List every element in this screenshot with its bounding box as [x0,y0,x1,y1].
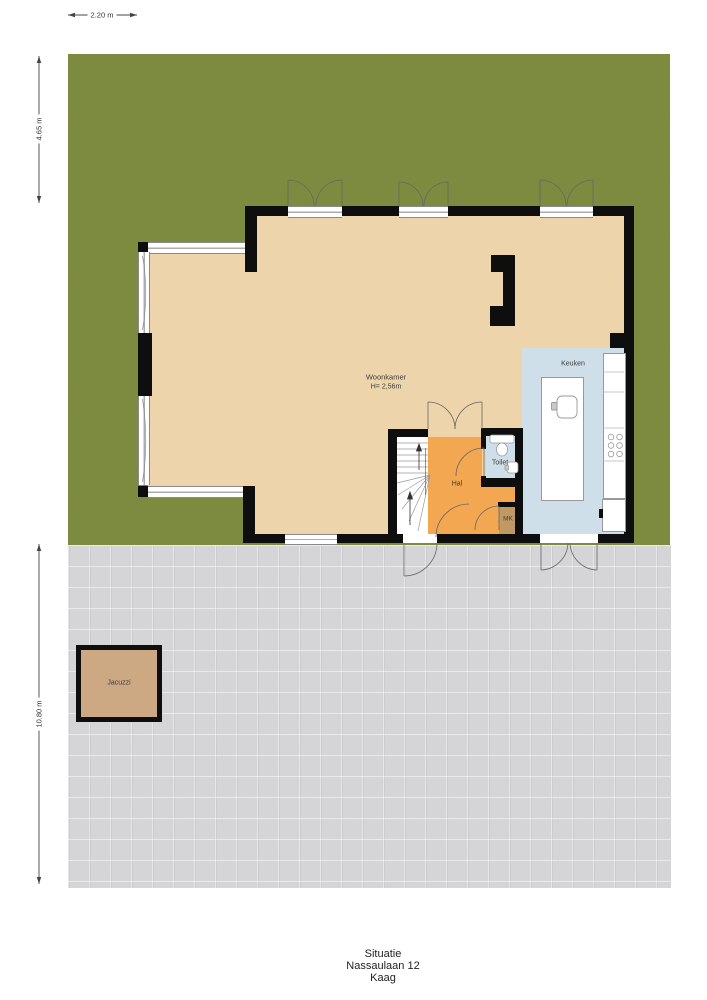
hall-label: Hal [452,481,463,488]
dimension-top-width: 2.20 m [88,11,117,20]
wall-kitchen-divider [515,428,523,534]
window-top-2 [399,206,448,218]
wall-left-lower [243,486,255,543]
chimney-top [491,255,515,272]
jacuzzi-label: Jacuzzi [107,680,130,687]
bay-window-left-2 [138,396,150,485]
livingroom-height-label: H= 2,56m [371,384,402,391]
wall-toilet-bottom [486,478,515,487]
window-top-3 [540,206,593,218]
wall-bottom-2 [337,534,403,543]
wall-bottom-3 [437,534,540,543]
toilet-floor [486,433,515,478]
wall-stairs-left [388,429,397,534]
chimney-stem [503,272,515,306]
bay-window-left-1 [138,252,150,333]
wall-stairs-top [388,429,428,437]
bay-corner-top [138,242,148,252]
wall-left-upper [245,206,257,272]
kitchen-counter [603,353,626,499]
window-bottom [285,534,337,545]
chimney-bottom [490,306,515,326]
kitchen-appliance [602,499,626,532]
toilet-label: Toilet [492,460,508,467]
wall-right-step [610,333,624,348]
front-door-opening [403,534,437,543]
mk-label: MK [503,516,513,523]
floorplan-page: 2.20 m 4.65 m 10.80 m Jacuzzi [0,0,707,1000]
wall-bottom-4 [598,534,634,543]
wall-mk-top [498,502,515,507]
staircase-floor [397,437,428,534]
bay-window-top [148,242,245,254]
title-line-2: Nassaulaan 12 [346,960,419,972]
livingroom-bay-floor [148,252,257,486]
title-block: Situatie Nassaulaan 12 Kaag [346,948,419,984]
title-line-1: Situatie [346,948,419,960]
wall-toilet-left-upper [481,428,486,449]
title-line-3: Kaag [346,972,419,984]
bay-window-bottom [148,486,243,498]
bay-pier-middle [138,333,152,396]
window-top-1 [288,206,342,218]
kitchen-label: Keuken [561,361,585,368]
livingroom-label: Woonkamer [366,373,406,382]
dimension-left-lower: 10.80 m [35,697,44,730]
kitchen-island [541,377,584,501]
terrace-door-opening [540,534,598,543]
dimension-left-upper: 4.65 m [35,115,44,144]
